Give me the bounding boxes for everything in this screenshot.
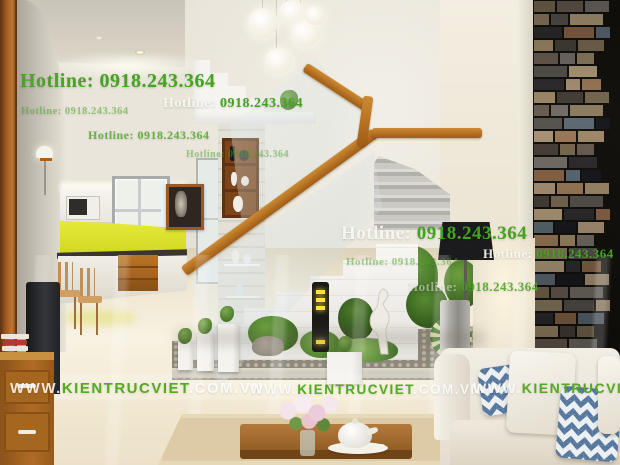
teacup [374,444,385,451]
hotline-number: 0918.243.364 [417,223,528,244]
watermark-hotline: Hotline: 0918.243.364 [408,279,539,295]
microwave [66,196,100,220]
watermark-hotline: Hotline: 0918.243.364 [483,246,614,262]
ceiling-spotlight [135,50,145,55]
website-suffix: .COM.VN [414,382,482,397]
hotline-label: Hotline: [186,149,225,160]
ceiling-spotlight [95,36,103,40]
sconce-stem [44,161,46,195]
coffee-table-edge [240,450,412,459]
watermark-hotline: Hotline: 0918.243.364 [346,256,458,268]
hotline-number: 0918.243.364 [461,279,539,294]
hotline-number: 0918.243.364 [536,246,614,261]
watermark-hotline: Hotline: 0918.243.364 [21,106,129,117]
book [3,340,27,345]
flower-vase [300,430,315,456]
lily-flowers [276,392,342,434]
cabinet-top [0,352,54,360]
pendant-globe [265,48,292,74]
interior-render: Hotline: 0918.243.364 Hotline: 0918.243.… [0,0,620,465]
website-brand: KIENTRUCVIET [297,382,413,397]
website-brand: KIENTRUCVIET [62,380,189,397]
hotline-label: Hotline: [483,246,533,261]
wall-sconce [36,146,53,158]
website-prefix: WWW. [473,380,522,396]
chair-back [58,262,73,292]
microwave-door [69,199,87,215]
hotline-label: Hotline: [408,279,458,294]
website-prefix: WWW. [10,380,62,397]
hotline-number: 0918.243.364 [65,106,129,117]
wooden-handrail [372,128,482,138]
book [1,334,29,339]
website-brand: KIENTRUCVIET [522,380,620,396]
watermark-hotline: Hotline: 0918.243.364 [20,70,216,93]
pendant-globe [248,8,278,38]
dining-chair [80,268,106,334]
website-prefix: WWW. [250,382,297,397]
tv-cabinet [0,352,54,465]
picture-art [175,191,187,217]
watermark-hotline: Hotline: 0918.243.364 [88,128,210,143]
hotline-label: Hotline: [341,223,412,244]
window-mullion [115,209,161,212]
teapot-lid [352,418,358,424]
watermark-hotline: Hotline: 0918.243.364 [341,223,527,245]
sconce-arm [40,158,52,161]
hotline-number: 0918.243.364 [100,70,216,92]
watermark-website: WWW.KIENTRUCVIET.COM.VN [10,380,264,397]
pendant-globe [305,6,325,25]
watermark-hotline: Hotline: 0918.243.364 [163,96,303,112]
hotline-number: 0918.243.364 [392,256,459,268]
watermark-hotline: Hotline: 0918.243.364 [186,149,289,160]
watermark-website: WWW.KIENTRUCVIET.COM.VN [473,380,620,396]
watermark-website: WWW.KIENTRUCVIET.COM.VN [250,382,482,397]
hotline-number: 0918.243.364 [228,149,289,160]
hotline-label: Hotline: [20,70,94,92]
hotline-number: 0918.243.364 [220,96,303,111]
hotline-label: Hotline: [346,256,389,268]
hotline-label: Hotline: [21,106,62,117]
chair-legs [80,303,100,335]
chair-seat [78,296,102,303]
book [2,346,28,351]
chair-legs [58,297,78,329]
chair-back [80,268,95,298]
hotline-label: Hotline: [88,128,134,142]
hotline-number: 0918.243.364 [138,128,210,142]
teapot [338,422,372,448]
wall-picture [166,184,204,230]
drawer-handle [18,430,36,434]
hotline-label: Hotline: [163,96,216,111]
